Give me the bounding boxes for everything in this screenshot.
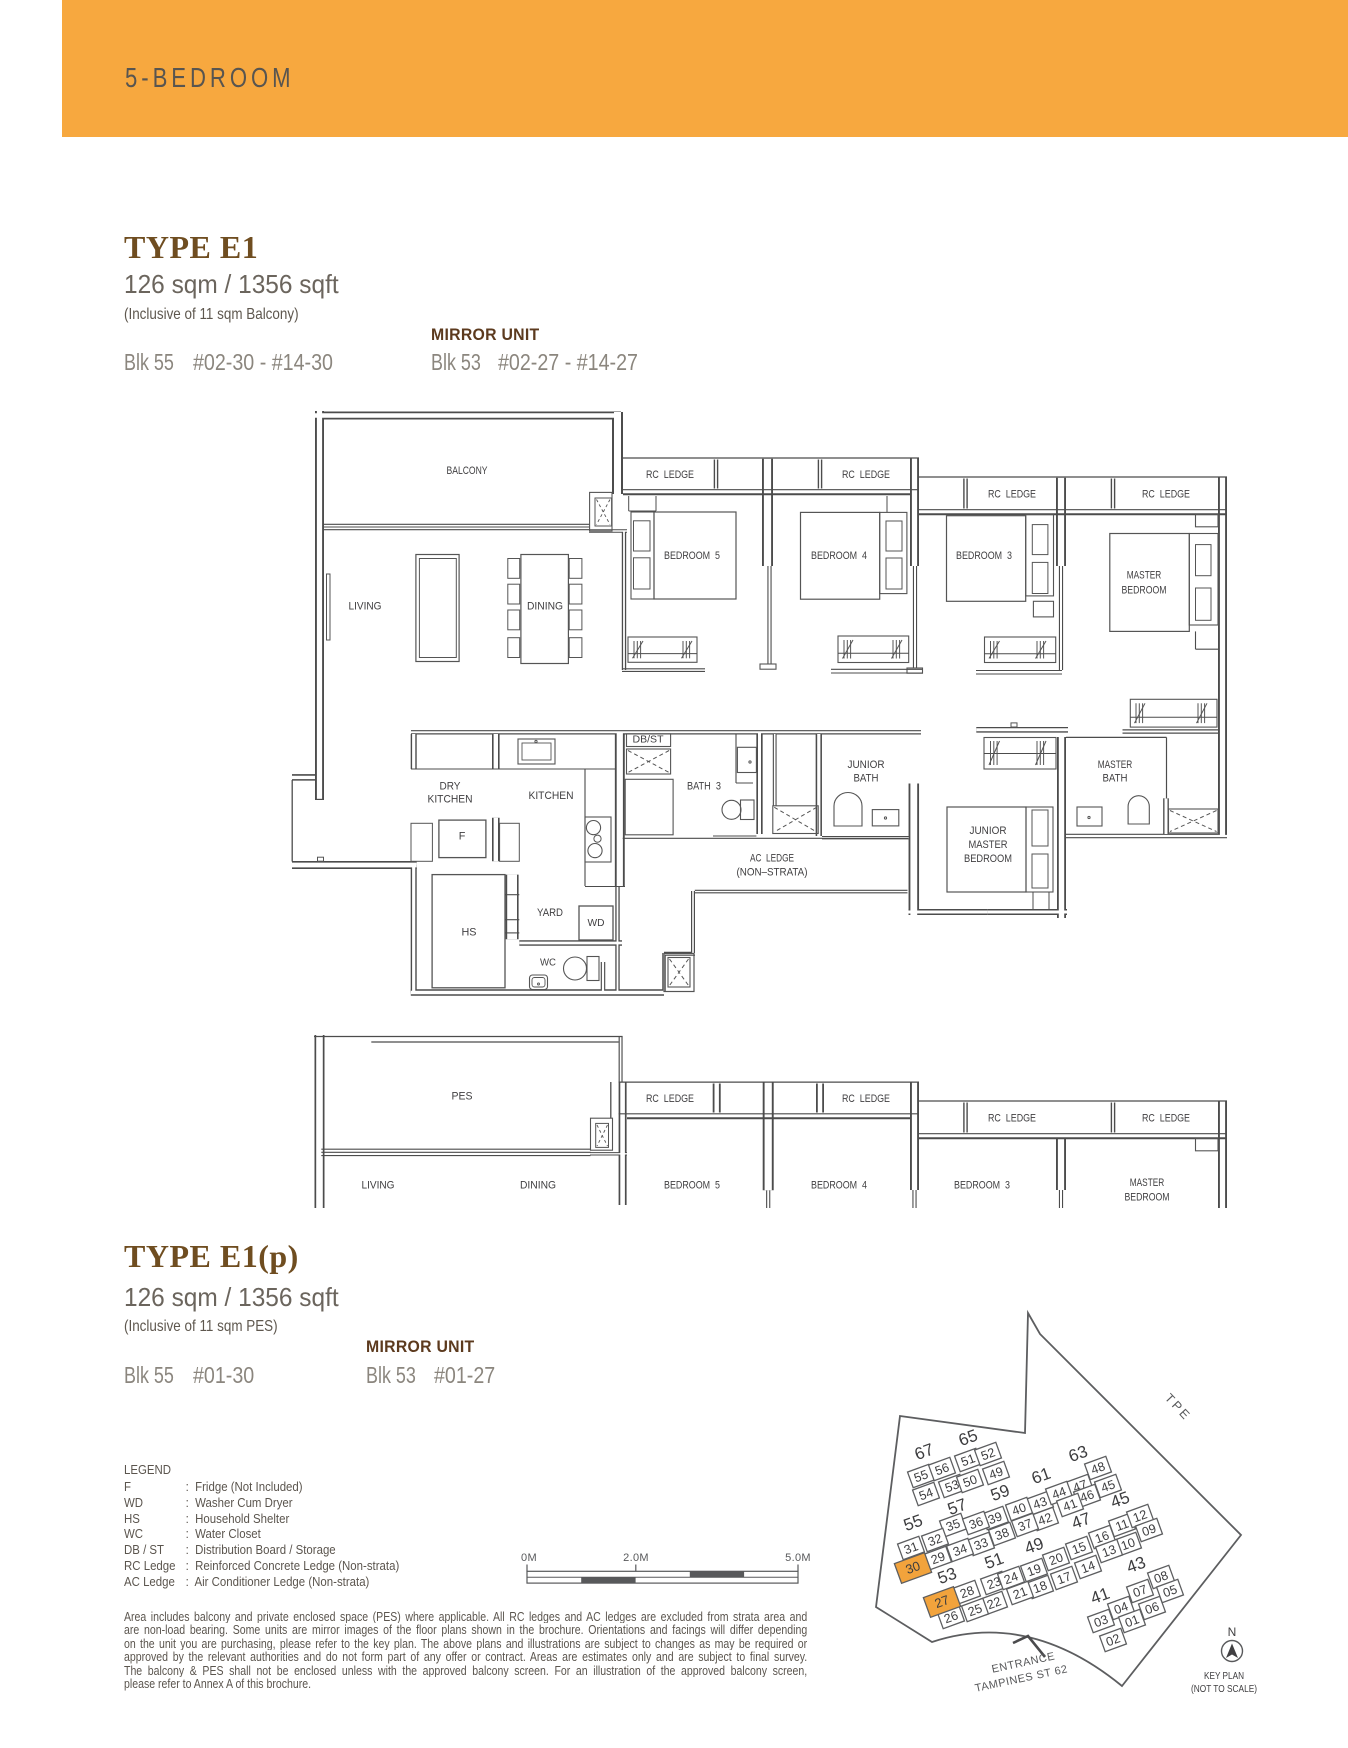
- svg-text:BEDROOM 3: BEDROOM 3: [954, 1180, 1010, 1192]
- svg-text:63: 63: [1066, 1442, 1090, 1466]
- svg-text:43: 43: [1124, 1553, 1148, 1577]
- svg-text:67: 67: [912, 1440, 936, 1464]
- svg-text:F: F: [459, 831, 466, 843]
- svg-text:DINING: DINING: [527, 601, 563, 613]
- svg-text:LIVING: LIVING: [362, 1180, 395, 1192]
- svg-text:DRY: DRY: [440, 781, 461, 793]
- svg-text:RC LEDGE: RC LEDGE: [988, 489, 1036, 501]
- svg-text:59: 59: [988, 1481, 1012, 1505]
- svg-text:YARD: YARD: [537, 907, 563, 919]
- svg-text:DINING: DINING: [520, 1180, 556, 1192]
- svg-text:PES: PES: [452, 1091, 473, 1103]
- svg-text:N: N: [1228, 1625, 1237, 1639]
- svg-text:BEDROOM: BEDROOM: [1122, 585, 1167, 597]
- svg-text:JUNIOR: JUNIOR: [970, 825, 1007, 837]
- svg-text:AC LEDGE: AC LEDGE: [750, 853, 794, 865]
- svg-text:65: 65: [956, 1426, 980, 1450]
- svg-text:LIVING: LIVING: [349, 601, 382, 613]
- svg-text:RC LEDGE: RC LEDGE: [842, 469, 890, 481]
- svg-text:WC: WC: [540, 958, 556, 969]
- svg-text:RC LEDGE: RC LEDGE: [842, 1093, 890, 1105]
- svg-text:BATH: BATH: [1103, 773, 1128, 785]
- svg-text:(NON–STRATA): (NON–STRATA): [737, 867, 808, 879]
- svg-text:2.0M: 2.0M: [623, 1552, 649, 1564]
- svg-text:JUNIOR: JUNIOR: [848, 759, 885, 771]
- svg-text:61: 61: [1029, 1464, 1053, 1488]
- svg-text:MASTER: MASTER: [1098, 759, 1133, 771]
- svg-text:55: 55: [901, 1511, 925, 1535]
- svg-text:HS: HS: [462, 927, 477, 939]
- svg-text:TPE: TPE: [1162, 1391, 1194, 1424]
- svg-text:KEY PLAN: KEY PLAN: [1204, 1670, 1244, 1682]
- svg-text:51: 51: [982, 1549, 1006, 1573]
- svg-text:BEDROOM 4: BEDROOM 4: [811, 1180, 867, 1192]
- svg-text:BATH: BATH: [854, 773, 879, 785]
- svg-text:MASTER: MASTER: [1127, 570, 1162, 582]
- svg-text:RC LEDGE: RC LEDGE: [988, 1113, 1036, 1125]
- svg-text:BALCONY: BALCONY: [447, 465, 488, 477]
- svg-text:(NOT TO SCALE): (NOT TO SCALE): [1191, 1683, 1257, 1695]
- svg-text:MASTER: MASTER: [969, 839, 1008, 851]
- svg-text:BEDROOM 3: BEDROOM 3: [956, 550, 1012, 562]
- svg-text:BEDROOM: BEDROOM: [964, 853, 1012, 865]
- svg-text:RC LEDGE: RC LEDGE: [646, 1093, 694, 1105]
- svg-text:0M: 0M: [521, 1552, 537, 1564]
- svg-text:49: 49: [1022, 1534, 1046, 1558]
- svg-text:WD: WD: [588, 918, 605, 929]
- svg-text:RC LEDGE: RC LEDGE: [646, 469, 694, 481]
- svg-text:57: 57: [945, 1495, 969, 1519]
- svg-text:BEDROOM 5: BEDROOM 5: [664, 1180, 720, 1192]
- svg-text:DB/ST: DB/ST: [633, 735, 664, 746]
- svg-text:5.0M: 5.0M: [785, 1552, 811, 1564]
- svg-text:RC LEDGE: RC LEDGE: [1142, 489, 1190, 501]
- svg-text:53: 53: [935, 1564, 959, 1588]
- svg-text:KITCHEN: KITCHEN: [428, 794, 473, 806]
- svg-text:MASTER: MASTER: [1130, 1177, 1165, 1189]
- svg-text:BEDROOM 5: BEDROOM 5: [664, 550, 720, 562]
- svg-text:RC LEDGE: RC LEDGE: [1142, 1113, 1190, 1125]
- svg-text:BEDROOM: BEDROOM: [1125, 1192, 1170, 1204]
- svg-text:BATH 3: BATH 3: [687, 781, 721, 793]
- svg-text:KITCHEN: KITCHEN: [529, 790, 574, 802]
- svg-text:BEDROOM 4: BEDROOM 4: [811, 550, 867, 562]
